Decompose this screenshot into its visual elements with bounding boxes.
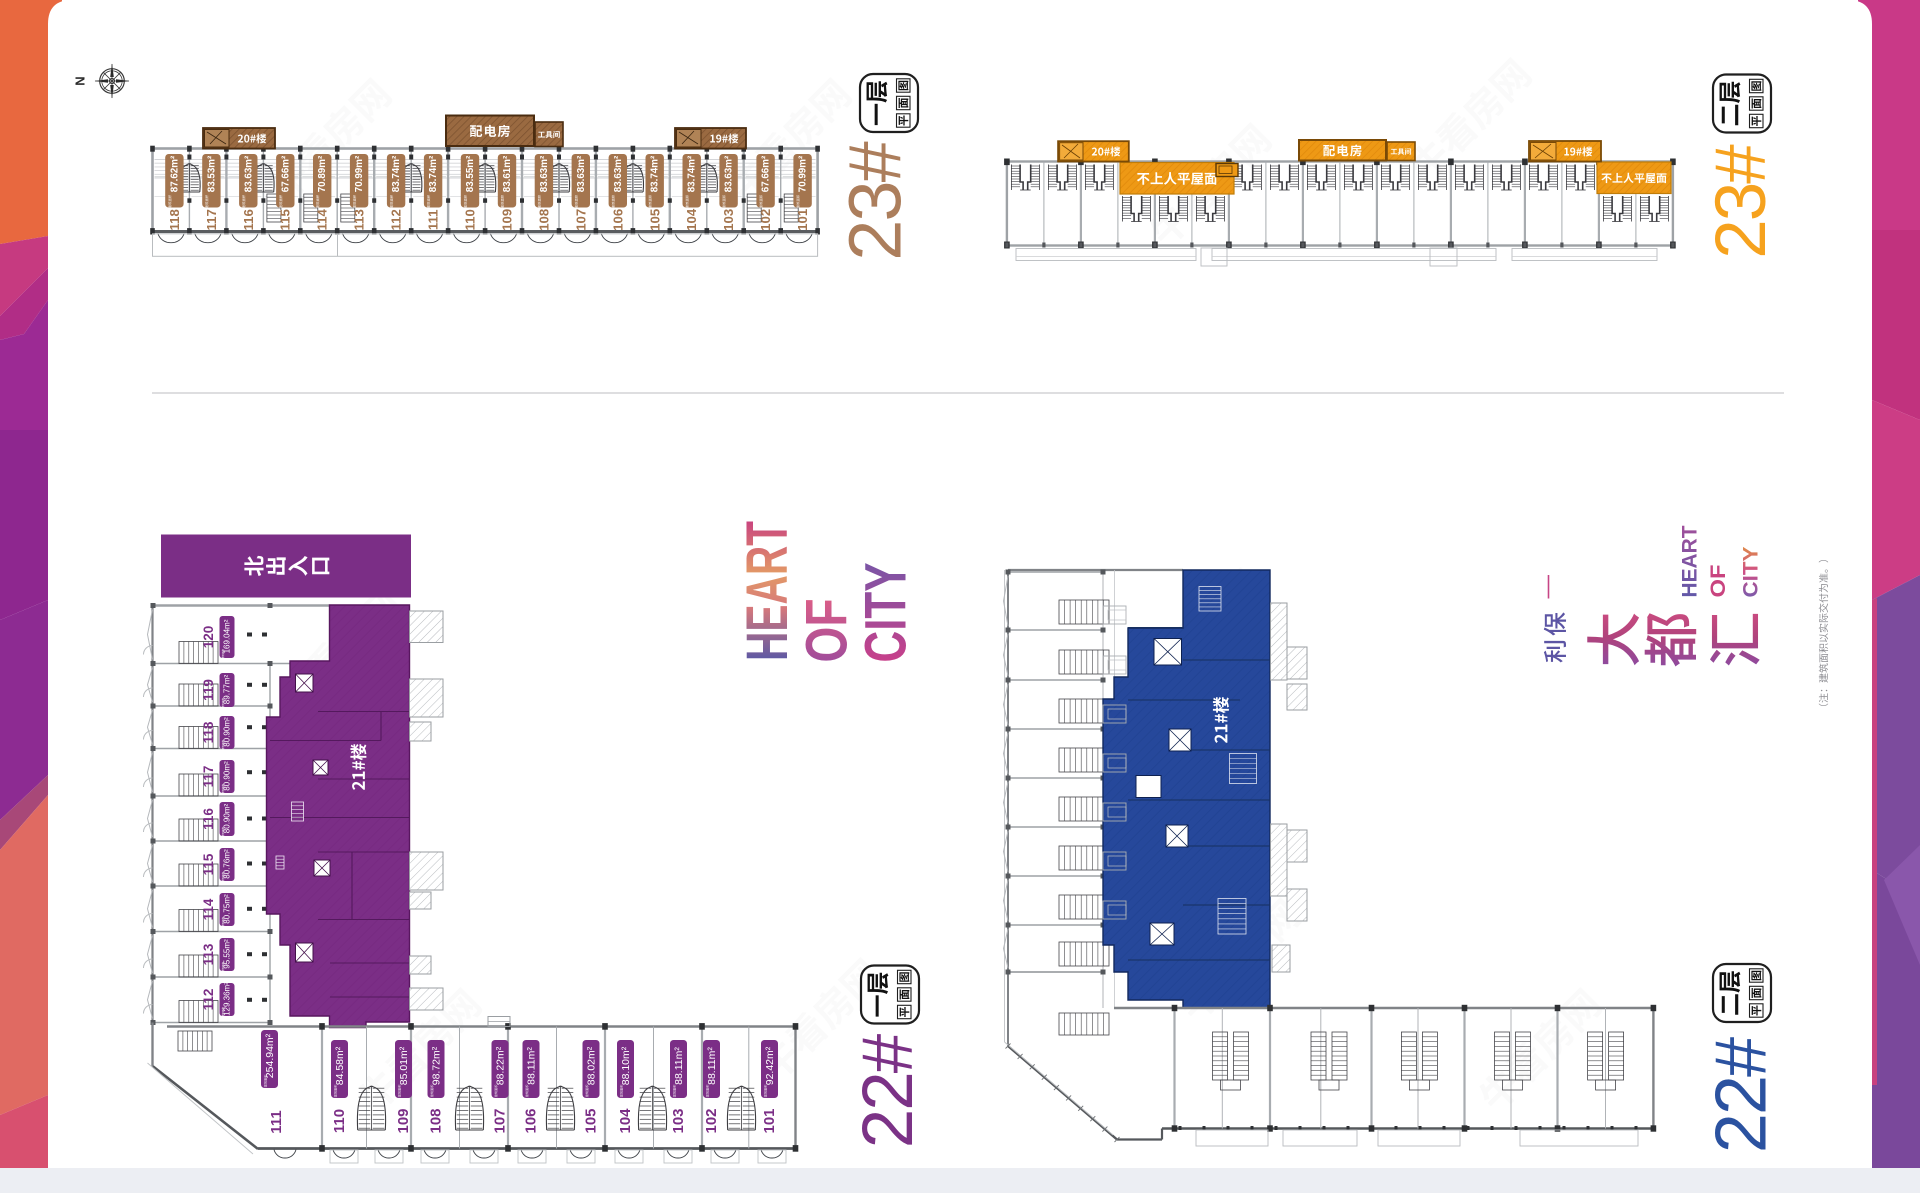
svg-text:83.55m²: 83.55m² [465,155,476,192]
svg-text:104: 104 [617,1108,634,1134]
svg-text:106: 106 [523,1108,540,1133]
svg-text:80.75m²: 80.75m² [223,894,232,924]
svg-text:83.63m²: 83.63m² [724,155,735,192]
svg-text:101: 101 [795,209,810,231]
svg-text:113: 113 [352,209,367,230]
svg-text:CITY: CITY [854,563,919,663]
svg-text:83.74m²: 83.74m² [391,155,402,192]
svg-text:117: 117 [204,209,219,230]
svg-text:112: 112 [201,989,216,1011]
svg-text:22#: 22# [849,1033,928,1148]
svg-text:119: 119 [201,679,216,701]
svg-text:111: 111 [426,210,441,231]
svg-text:107: 107 [492,1108,509,1133]
svg-text:OF: OF [1707,564,1730,597]
svg-text:254.94m²: 254.94m² [264,1033,276,1078]
svg-text:108: 108 [536,209,551,231]
svg-text:83.53m²: 83.53m² [206,155,217,192]
svg-text:112: 112 [389,209,404,230]
svg-text:70.99m²: 70.99m² [354,155,365,192]
svg-text:80.90m²: 80.90m² [223,761,232,791]
svg-text:114: 114 [315,209,330,231]
svg-text:88.11m²: 88.11m² [526,1047,538,1085]
svg-text:HEART: HEART [735,521,800,661]
svg-text:88.22m²: 88.22m² [495,1046,507,1085]
svg-text:83.63m²: 83.63m² [243,155,254,192]
svg-text:120: 120 [201,626,216,649]
svg-text:23#: 23# [1702,144,1781,259]
svg-text:111: 111 [268,1110,285,1133]
svg-text:67.66m²: 67.66m² [761,155,772,192]
svg-text:83.61m²: 83.61m² [502,155,513,192]
svg-text:107: 107 [573,209,588,231]
svg-text:OF: OF [795,599,860,663]
svg-text:84.58m²: 84.58m² [334,1046,346,1085]
svg-text:109: 109 [499,209,514,231]
svg-text:80.90m²: 80.90m² [223,717,232,747]
svg-text:105: 105 [583,1108,600,1133]
svg-text:92.42m²: 92.42m² [764,1046,776,1085]
svg-text:115: 115 [201,853,216,875]
svg-text:110: 110 [463,209,478,230]
svg-text:129.36m²: 129.36m² [223,982,232,1016]
svg-text:103: 103 [721,209,736,231]
svg-text:83.74m²: 83.74m² [428,155,439,192]
svg-text:83.74m²: 83.74m² [687,155,698,192]
svg-text:102: 102 [703,1108,720,1133]
svg-text:HEART: HEART [1679,525,1702,597]
svg-text:83.63m²: 83.63m² [576,155,587,192]
svg-text:88.02m²: 88.02m² [586,1046,598,1085]
svg-text:103: 103 [670,1108,687,1133]
svg-text:83.63m²: 83.63m² [539,155,550,192]
svg-text:88.10m²: 88.10m² [620,1046,632,1085]
svg-text:169.04m²: 169.04m² [223,619,232,653]
svg-text:87.62m²: 87.62m² [169,155,180,192]
svg-text:70.99m²: 70.99m² [798,155,809,192]
svg-text:109: 109 [395,1108,412,1133]
svg-text:CITY: CITY [1740,547,1763,598]
svg-text:85.01m²: 85.01m² [398,1046,410,1085]
svg-text:83.63m²: 83.63m² [613,155,624,192]
svg-text:113: 113 [201,943,216,965]
svg-text:95.55m²: 95.55m² [223,939,232,969]
svg-text:23#: 23# [834,141,917,260]
svg-text:80.76m²: 80.76m² [223,849,232,879]
svg-text:114: 114 [201,898,216,920]
svg-text:115: 115 [278,209,293,230]
svg-text:101: 101 [761,1108,778,1133]
svg-text:116: 116 [201,808,216,830]
svg-text:88.11m²: 88.11m² [706,1047,718,1085]
svg-text:98.72m²: 98.72m² [431,1046,443,1085]
svg-text:108: 108 [428,1108,445,1133]
svg-text:105: 105 [647,209,662,231]
svg-text:88.11m²: 88.11m² [673,1047,685,1085]
svg-text:116: 116 [241,209,256,230]
svg-text:118: 118 [201,721,216,743]
svg-text:67.66m²: 67.66m² [280,155,291,192]
svg-text:102: 102 [758,209,773,231]
svg-text:117: 117 [201,766,216,788]
svg-text:118: 118 [167,209,182,230]
svg-text:106: 106 [610,209,625,231]
svg-text:22#: 22# [1702,1037,1782,1153]
svg-text:104: 104 [684,208,699,231]
svg-text:70.89m²: 70.89m² [317,155,328,192]
svg-text:83.74m²: 83.74m² [650,155,661,192]
svg-text:N: N [73,76,88,85]
svg-text:110: 110 [331,1109,348,1133]
